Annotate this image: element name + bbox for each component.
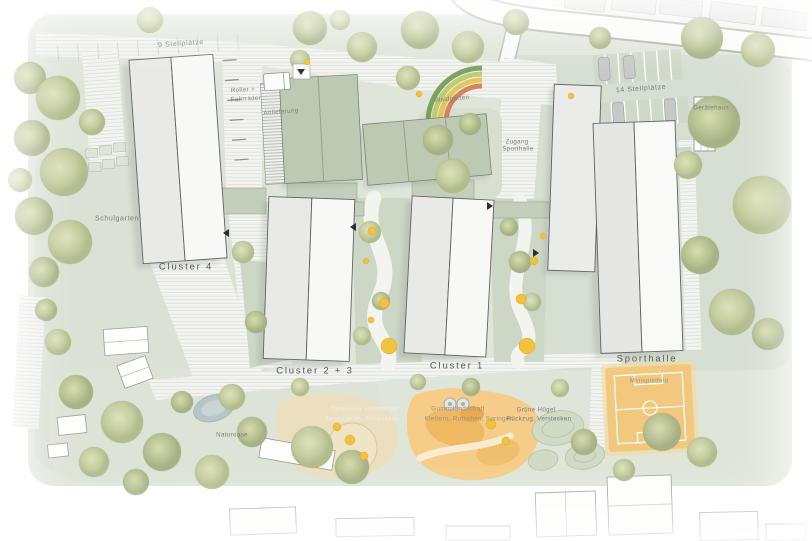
building-cluster-1: [404, 196, 494, 357]
tree: [59, 375, 93, 409]
tree: [752, 318, 784, 350]
tree: [79, 109, 105, 135]
tree: [688, 96, 740, 148]
tree: [143, 433, 181, 471]
site-plan-canvas: [0, 0, 812, 541]
tree: [48, 220, 92, 264]
tree: [40, 148, 88, 196]
building-cluster-2-3: [263, 197, 355, 362]
tree: [436, 159, 470, 193]
tree: [709, 289, 755, 335]
tree: [687, 437, 717, 467]
tree: [293, 11, 327, 45]
tree: [353, 327, 371, 345]
tree: [195, 455, 229, 489]
tree: [291, 426, 333, 468]
tree: [589, 27, 611, 49]
tree: [35, 299, 57, 321]
tree: [643, 413, 681, 451]
building-sporthalle-annex: [548, 84, 601, 272]
tree: [613, 459, 635, 481]
tree: [101, 401, 143, 443]
entrance-marker: [293, 64, 310, 79]
path-west-court: [222, 58, 262, 190]
tree: [14, 120, 50, 156]
building-green-roof-a: [260, 75, 362, 185]
tree: [396, 66, 420, 90]
tree: [462, 378, 480, 396]
tree: [401, 11, 439, 49]
tree: [452, 31, 484, 63]
tree: [8, 168, 32, 192]
tree: [681, 236, 719, 274]
tree: [137, 7, 163, 33]
tree: [741, 33, 775, 67]
tree: [245, 311, 267, 333]
tree: [15, 197, 53, 235]
tree: [291, 378, 309, 396]
tree: [36, 76, 80, 120]
building-cluster-4: [129, 54, 227, 263]
tree: [459, 113, 481, 135]
tree: [674, 151, 702, 179]
tree: [500, 218, 518, 236]
building-sporthalle: [593, 121, 683, 354]
tree: [232, 241, 254, 263]
tree: [509, 251, 531, 273]
tree: [237, 417, 267, 447]
tree: [123, 469, 149, 495]
tree: [681, 17, 723, 59]
tree: [523, 293, 541, 311]
tree: [330, 10, 350, 30]
tree: [733, 176, 791, 234]
tree: [423, 125, 453, 155]
tree: [171, 391, 193, 413]
tree: [347, 32, 377, 62]
tree: [551, 379, 569, 397]
tree: [571, 429, 597, 455]
tree: [219, 384, 245, 410]
site-plan-drawing: 9 Stellplätze Anlieferung Roller + Fahrr…: [0, 0, 812, 541]
tree: [79, 447, 109, 477]
tree: [503, 9, 529, 35]
tree: [45, 329, 71, 355]
delivery-truck-icon: [263, 72, 290, 91]
tree: [410, 374, 426, 390]
tree: [29, 257, 59, 287]
